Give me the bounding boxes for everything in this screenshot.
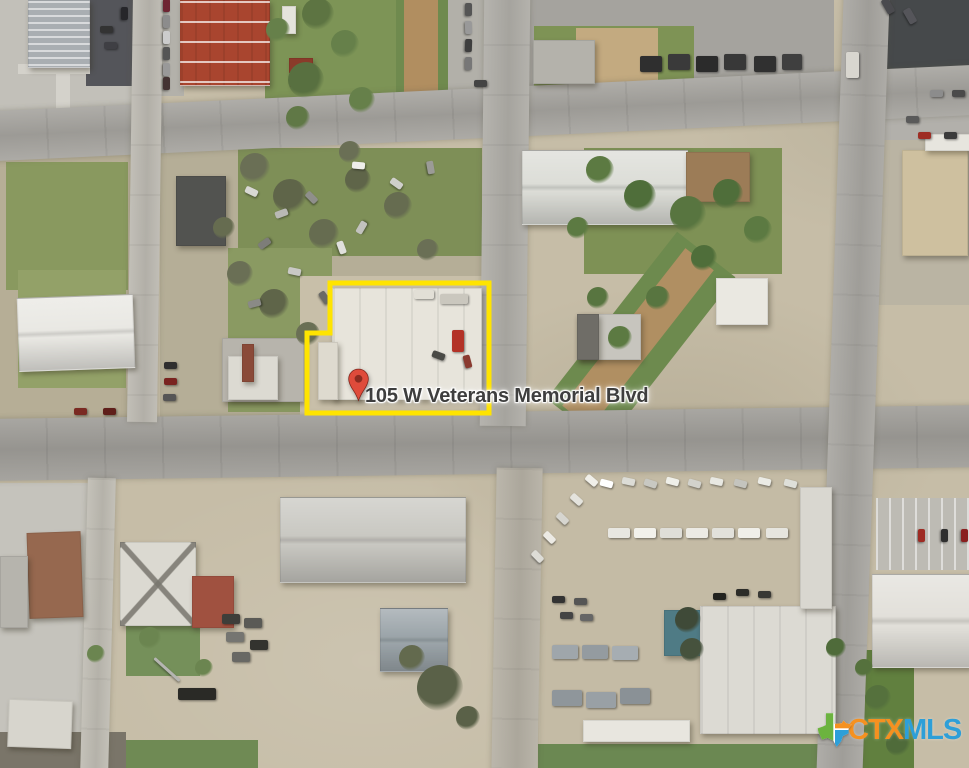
vehicle — [552, 645, 578, 659]
texas-icon — [816, 712, 854, 748]
building — [180, 0, 270, 86]
building — [7, 699, 73, 749]
vehicle — [668, 54, 690, 70]
vehicle — [944, 132, 957, 139]
tree — [855, 659, 873, 677]
vehicle — [465, 39, 472, 52]
vehicle — [163, 63, 170, 76]
tree — [87, 645, 105, 663]
vehicle — [640, 56, 662, 72]
vehicle — [586, 692, 616, 708]
ctxmls-logo: CTXMLS — [816, 712, 961, 748]
tree — [296, 322, 320, 346]
ground-patch — [56, 64, 70, 114]
vehicle — [552, 596, 565, 603]
building — [280, 497, 466, 583]
vehicle — [121, 7, 128, 20]
vehicle — [232, 652, 250, 662]
tree — [240, 153, 270, 183]
vehicle — [686, 528, 708, 538]
tree — [339, 141, 361, 163]
building — [242, 344, 254, 382]
tree — [567, 217, 589, 239]
vehicle — [738, 528, 760, 538]
vehicle — [713, 593, 726, 600]
ground-patch — [538, 744, 822, 768]
vehicle — [712, 528, 734, 538]
vehicle — [918, 132, 931, 139]
tree — [675, 607, 701, 633]
vehicle — [352, 161, 366, 169]
vehicle — [582, 645, 608, 659]
tree — [195, 659, 213, 677]
pin-body — [349, 369, 369, 400]
logo-text-mls: MLS — [903, 716, 961, 745]
tree — [399, 645, 425, 671]
vehicle — [941, 529, 948, 542]
ground-patch — [124, 740, 258, 768]
vehicle — [660, 528, 682, 538]
tree — [259, 289, 289, 319]
vehicle — [724, 54, 746, 70]
vehicle — [580, 614, 593, 621]
tree — [826, 638, 846, 658]
tree — [713, 179, 743, 209]
building — [120, 542, 196, 626]
tree — [608, 326, 632, 350]
building — [716, 278, 768, 325]
vehicle — [608, 528, 630, 538]
vehicle — [758, 591, 771, 598]
vehicle — [440, 294, 468, 304]
vehicle — [620, 688, 650, 704]
vehicle — [104, 42, 117, 49]
vehicle — [163, 31, 170, 44]
vehicle — [930, 90, 943, 97]
vehicle — [574, 598, 587, 605]
tree — [331, 30, 359, 58]
vehicle — [952, 90, 965, 97]
vehicle — [465, 3, 472, 16]
tree — [691, 245, 717, 271]
vehicle — [164, 362, 177, 369]
building — [17, 294, 136, 372]
building — [318, 342, 338, 400]
building — [27, 531, 84, 619]
vehicle — [414, 290, 434, 299]
tree — [586, 156, 614, 184]
tree — [288, 62, 324, 98]
vehicle — [696, 56, 718, 72]
vehicle — [163, 394, 176, 401]
tree — [227, 261, 253, 287]
vehicle — [74, 408, 87, 415]
building — [800, 487, 832, 609]
vehicle — [918, 529, 925, 542]
tree — [139, 627, 161, 649]
vehicle — [465, 21, 472, 34]
vehicle — [250, 640, 268, 650]
tree — [624, 180, 656, 212]
property-address-label: 105 W Veterans Memorial Blvd — [365, 385, 648, 408]
tree — [286, 106, 310, 130]
tree — [417, 239, 439, 261]
tree — [266, 18, 290, 42]
vehicle — [100, 26, 113, 33]
building — [902, 150, 968, 256]
texas-orange-piece — [835, 712, 853, 728]
location-pin-icon — [347, 368, 370, 402]
vehicle — [612, 646, 638, 660]
vehicle — [178, 688, 216, 700]
tree — [273, 179, 307, 213]
logo-text-ctx: CTX — [848, 716, 903, 745]
vehicle — [766, 528, 788, 538]
pin-hole — [355, 375, 363, 383]
tree — [680, 638, 704, 662]
vehicle — [552, 690, 582, 706]
tree — [384, 192, 412, 220]
tree — [865, 685, 891, 711]
vehicle — [103, 408, 116, 415]
satellite-map: 105 W Veterans Memorial Blvd CTXMLS — [0, 0, 969, 768]
building — [0, 556, 28, 628]
vehicle — [782, 54, 802, 70]
vehicle — [474, 80, 487, 87]
vehicle — [163, 47, 170, 60]
tree — [213, 217, 235, 239]
tree — [417, 665, 463, 711]
tree — [744, 216, 772, 244]
vehicle — [452, 330, 464, 352]
vehicle — [465, 57, 472, 70]
texas-green-piece — [817, 712, 833, 748]
tree — [670, 196, 706, 232]
vehicle — [560, 612, 573, 619]
vehicle — [754, 56, 776, 72]
tree — [345, 167, 371, 193]
vehicle — [736, 589, 749, 596]
tree — [456, 706, 480, 730]
building — [28, 0, 90, 68]
vehicle — [222, 614, 240, 624]
vehicle — [226, 632, 244, 642]
tree — [646, 286, 670, 310]
vehicle — [244, 618, 262, 628]
texas-blue-piece — [835, 730, 853, 748]
building — [577, 314, 599, 360]
vehicle — [163, 15, 170, 28]
vehicle — [906, 116, 919, 123]
tree — [587, 287, 609, 309]
vehicle — [846, 52, 859, 78]
building — [583, 720, 690, 742]
vehicle — [163, 0, 170, 12]
tree — [349, 87, 375, 113]
vehicle — [634, 528, 656, 538]
vehicle — [961, 529, 968, 542]
building — [533, 40, 595, 84]
vehicle — [163, 77, 170, 90]
building — [872, 574, 969, 668]
tree — [309, 219, 339, 249]
vehicle — [164, 378, 177, 385]
road — [491, 468, 542, 768]
